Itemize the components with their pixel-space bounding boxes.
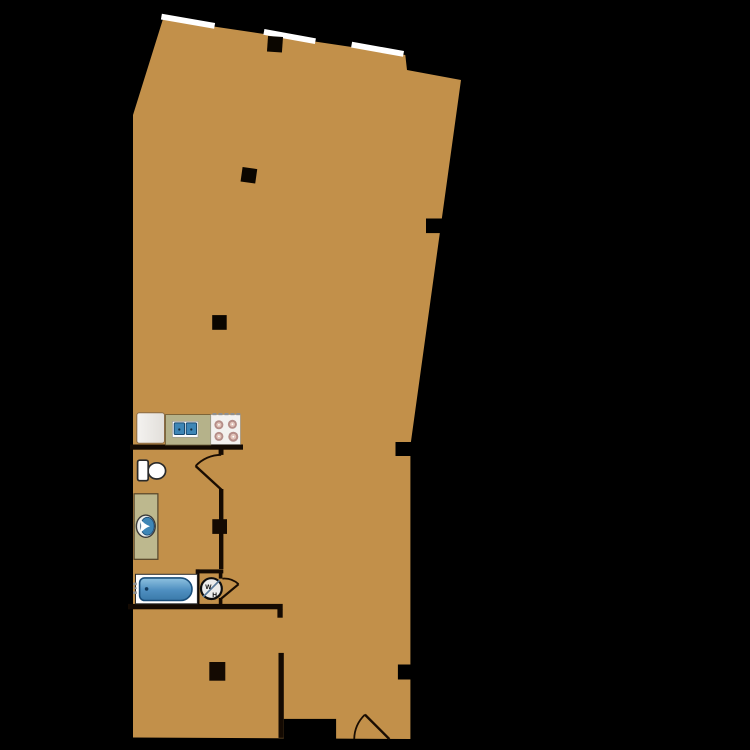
svg-text:W: W <box>205 584 212 591</box>
svg-text:H: H <box>212 592 217 599</box>
